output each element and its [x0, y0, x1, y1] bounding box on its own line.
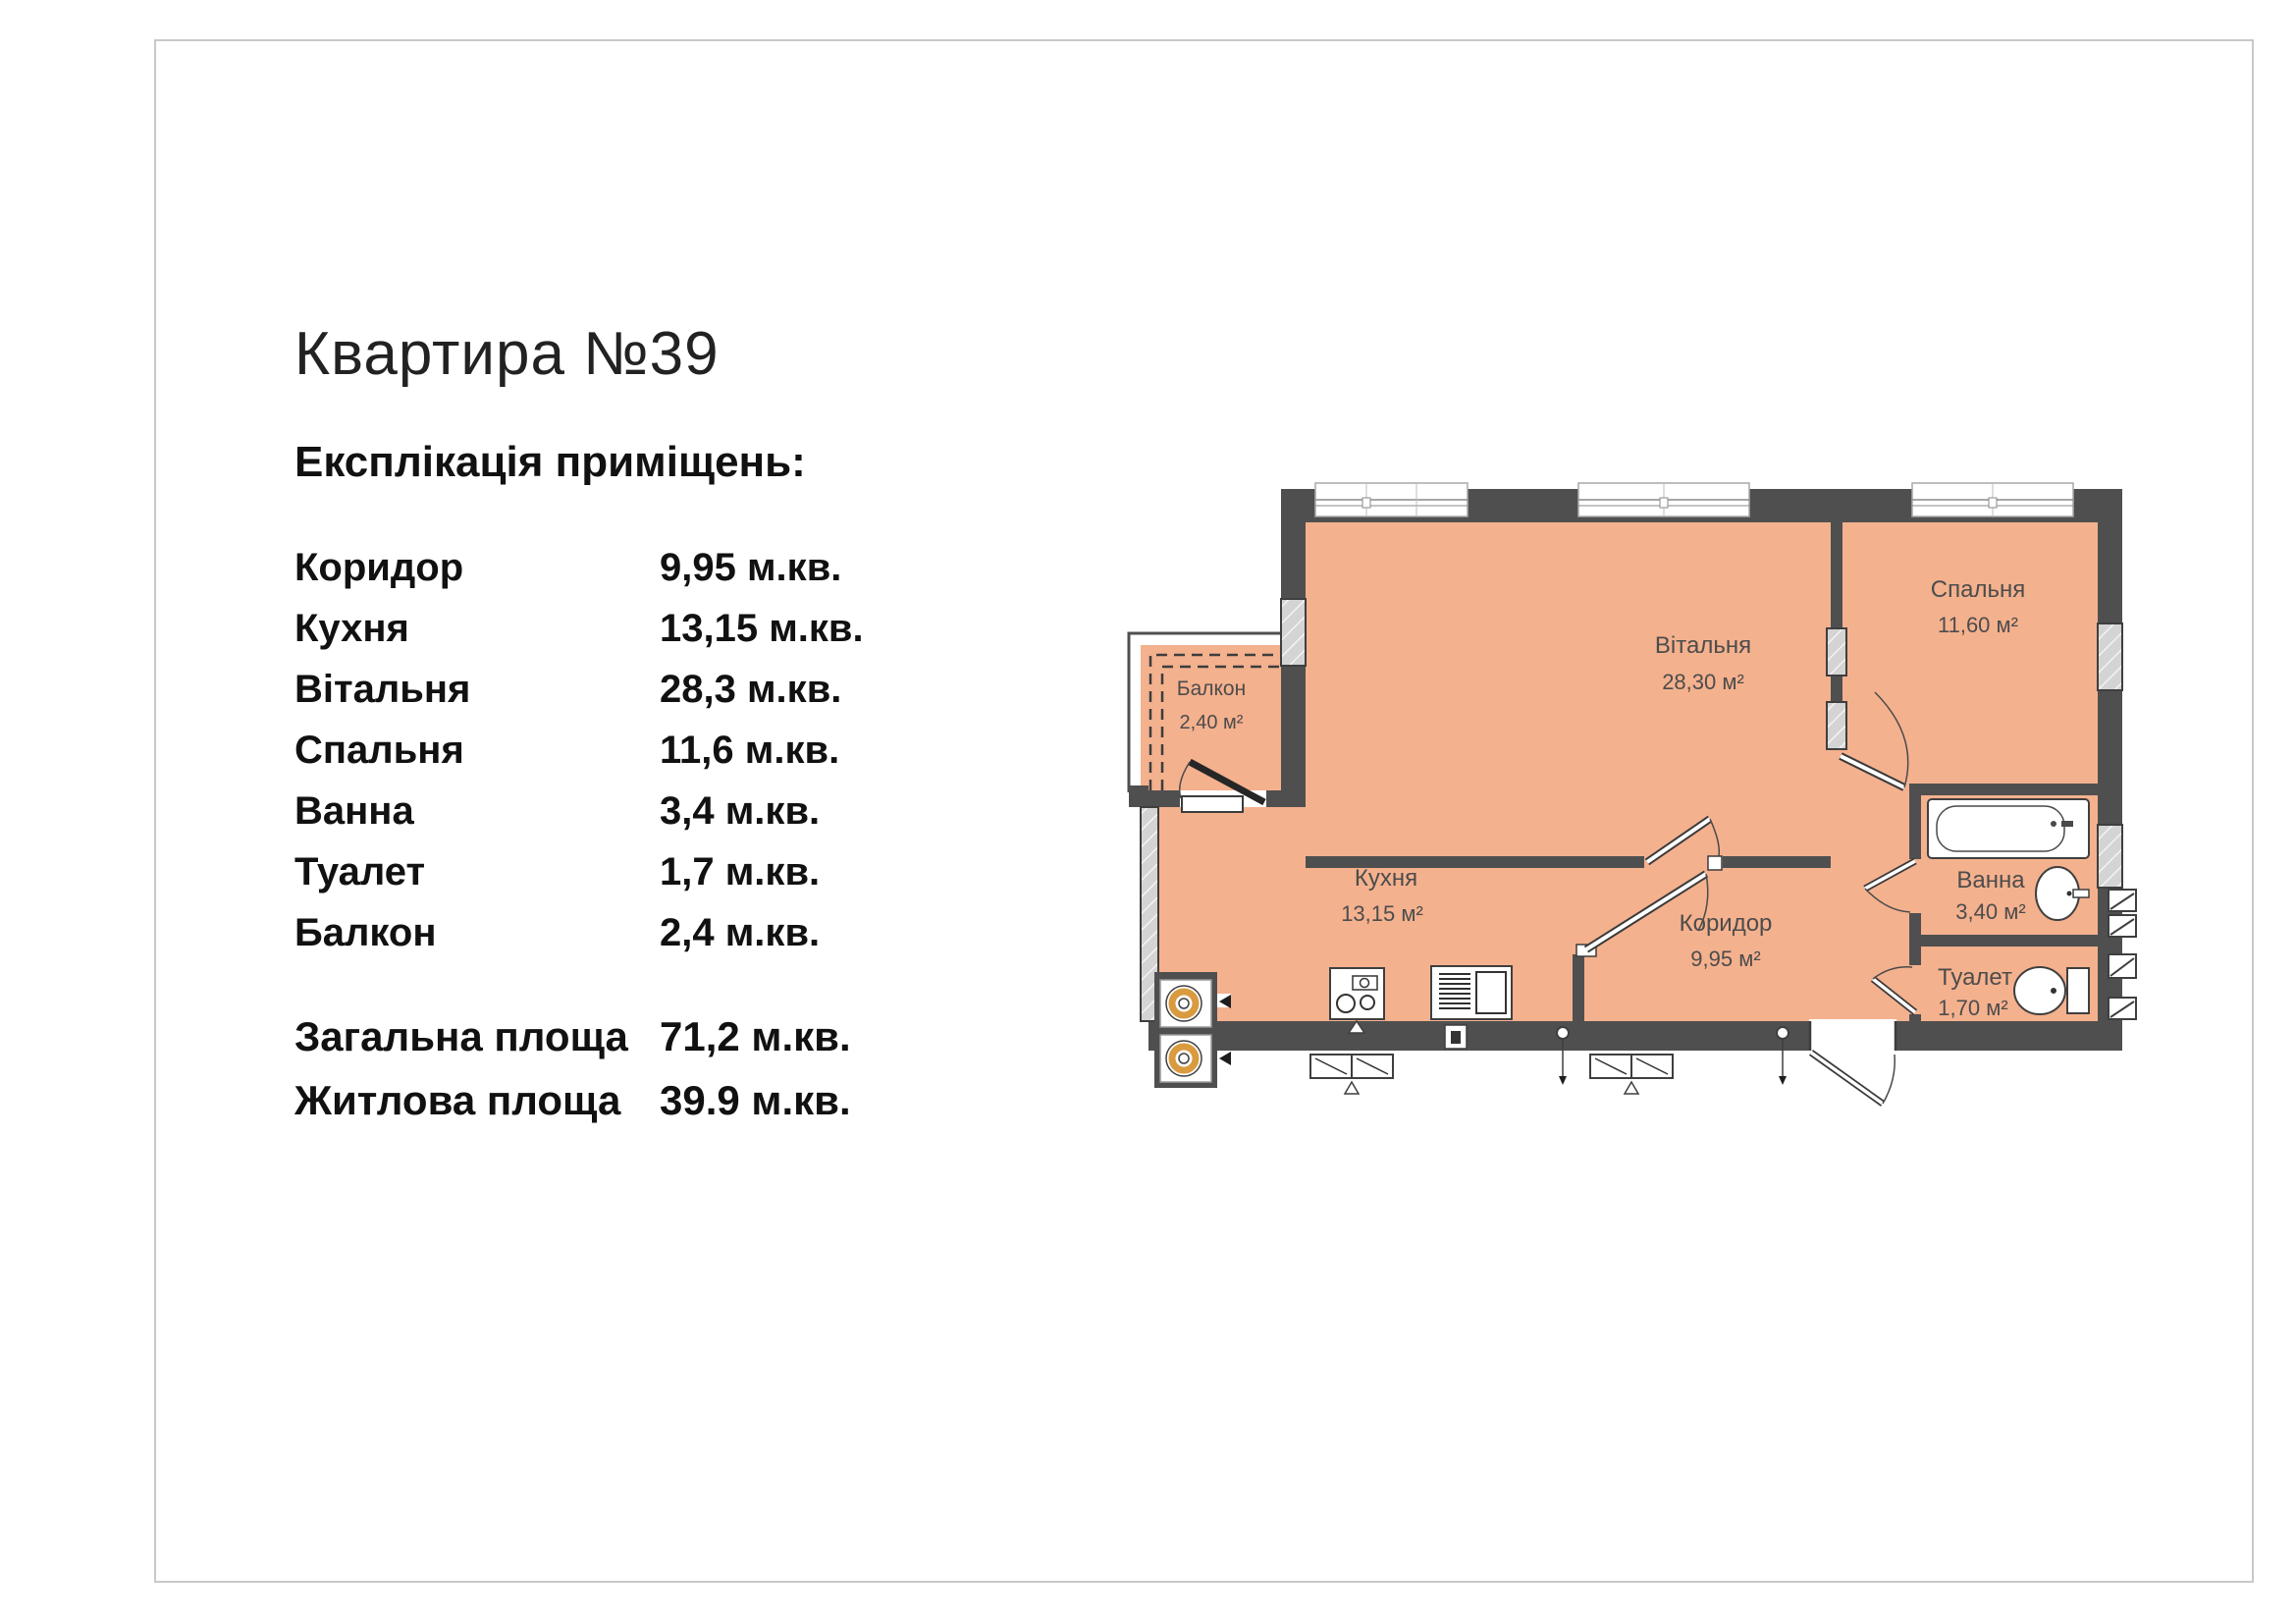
top-windows [1315, 483, 2073, 516]
floor-plan: Вітальня 28,30 м² Спальня 11,60 м² Балко… [1119, 452, 2140, 1119]
wall-corridor-bath-c [1909, 1014, 1921, 1021]
room-label-living: Вітальня [1655, 632, 1751, 659]
room-area: 2,4 м.кв. [660, 911, 820, 955]
page: { "page": { "background": "#ffffff", "fr… [0, 0, 2296, 1624]
wall-bath-toilet [1921, 935, 2098, 947]
room-area-label-toilet: 1,70 м² [1938, 996, 2007, 1020]
column-bedroom-door [1827, 702, 1846, 749]
room-name: Балкон [294, 911, 437, 955]
room-name: Туалет [294, 850, 425, 894]
window-panel-bedroom-right [2098, 623, 2122, 690]
total-label: Загальна площа [294, 1013, 628, 1060]
room-area-label-balcony: 2,40 м² [1180, 712, 1244, 733]
room-area-label-bedroom: 11,60 м² [1938, 613, 2018, 637]
radiator-icon [1310, 1055, 1393, 1094]
window-icon [1578, 483, 1749, 516]
room-row-toilet: Туалет 1,7 м.кв. [294, 850, 923, 911]
vent-boxes-right [2109, 890, 2136, 1019]
total-value: 39.9 м.кв. [660, 1077, 851, 1124]
total-label: Житлова площа [294, 1077, 620, 1124]
column-living-bedroom [1827, 628, 1846, 676]
room-area-label-bath: 3,40 м² [1955, 899, 2025, 924]
room-row-living: Вітальня 28,3 м.кв. [294, 668, 923, 729]
room-area-label-corridor: 9,95 м² [1690, 947, 1760, 971]
room-area: 9,95 м.кв. [660, 546, 841, 590]
room-name: Коридор [294, 546, 463, 590]
wall-balcony-bottom-left [1148, 790, 1180, 807]
room-area: 13,15 м.кв. [660, 607, 864, 651]
toilet-icon [2014, 967, 2089, 1014]
total-row-overall: Загальна площа 71,2 м.кв. [294, 1013, 923, 1077]
room-label-kitchen: Кухня [1355, 865, 1417, 892]
room-row-kitchen: Кухня 13,15 м.кв. [294, 607, 923, 668]
wall-living-corridor-right [1723, 856, 1831, 868]
room-label-bath: Ванна [1956, 867, 2025, 893]
room-area: 3,4 м.кв. [660, 789, 820, 834]
room-label-balcony: Балкон [1177, 677, 1246, 700]
room-label-toilet: Туалет [1938, 964, 2012, 991]
wall-balcony-bottom-right [1266, 790, 1306, 807]
fridge-icon [1431, 966, 1512, 1019]
totals: Загальна площа 71,2 м.кв. Житлова площа … [294, 1013, 923, 1141]
room-row-bedroom: Спальня 11,6 м.кв. [294, 729, 923, 789]
room-area: 1,7 м.кв. [660, 850, 820, 894]
room-row-bath: Ванна 3,4 м.кв. [294, 789, 923, 850]
section-heading: Експлікація приміщень: [294, 440, 982, 485]
room-area-label-living: 28,30 м² [1662, 670, 1744, 694]
room-name: Ванна [294, 789, 414, 834]
wall-kitchen-stub [1573, 954, 1584, 1021]
room-name: Вітальня [294, 668, 470, 712]
room-row-corridor: Коридор 9,95 м.кв. [294, 546, 923, 607]
window-panel-bath-right [2098, 825, 2122, 888]
room-label-corridor: Коридор [1680, 910, 1773, 937]
room-list: Коридор 9,95 м.кв. Кухня 13,15 м.кв. Віт… [294, 546, 923, 972]
total-value: 71,2 м.кв. [660, 1013, 851, 1060]
room-area-label-kitchen: 13,15 м² [1341, 901, 1423, 926]
room-name: Кухня [294, 607, 409, 651]
room-name: Спальня [294, 729, 464, 773]
page-title: Квартира №39 [294, 324, 982, 385]
wall-corridor-bath-b [1909, 913, 1921, 965]
wall-bottom [1148, 1021, 2122, 1051]
room-label-bedroom: Спальня [1931, 576, 2025, 603]
room-area: 28,3 м.кв. [660, 668, 841, 712]
window-icon [1315, 483, 1468, 516]
room-row-balcony: Балкон 2,4 м.кв. [294, 911, 923, 972]
radiator-icon [1590, 1055, 1673, 1094]
entrance-door [1809, 1019, 1896, 1104]
floor-plan-svg: Вітальня 28,30 м² Спальня 11,60 м² Балко… [1119, 452, 2140, 1119]
total-row-living-area: Житлова площа 39.9 м.кв. [294, 1077, 923, 1141]
room-area: 11,6 м.кв. [660, 729, 839, 773]
wall-corridor-bath-a [1909, 795, 1921, 859]
window-panel-living-left [1281, 599, 1306, 666]
wall-bedroom-bath [1909, 784, 2098, 795]
bathtub-icon [1928, 799, 2089, 858]
window-icon [1912, 483, 2073, 516]
